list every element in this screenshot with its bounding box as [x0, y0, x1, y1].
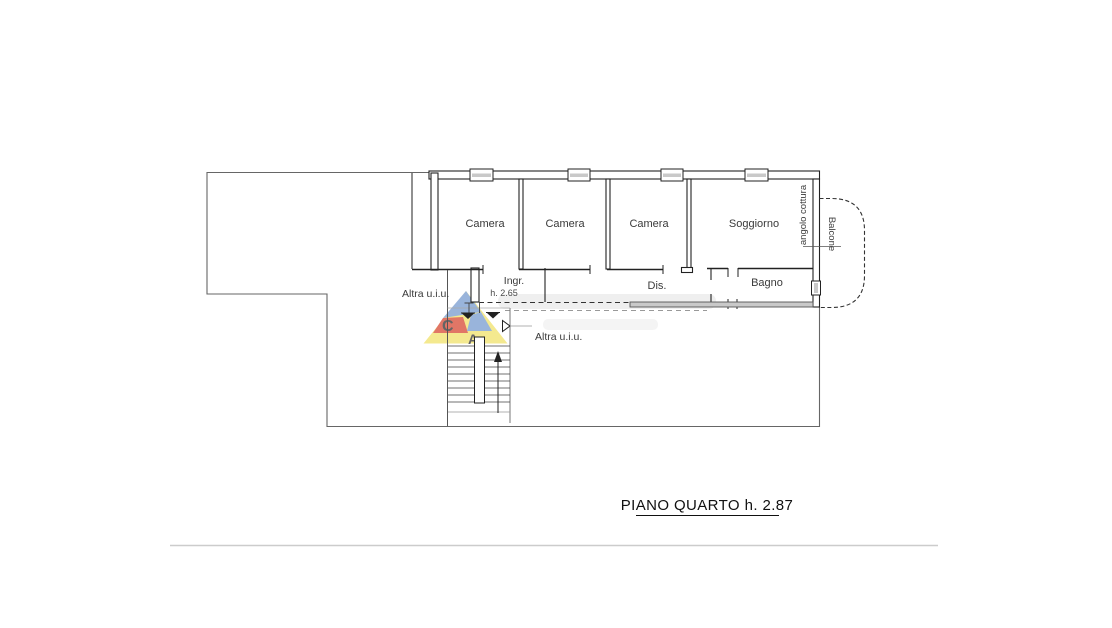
- plan-title-block: PIANO QUARTO h. 2.87: [621, 497, 794, 516]
- balcony-outline: [820, 199, 865, 308]
- partition-camera2-camera3: [606, 179, 610, 269]
- label-angolo-cottura: angolo cottura: [798, 184, 809, 245]
- label-soggiorno: Soggiorno: [729, 218, 779, 230]
- label-bagno: Bagno: [751, 277, 783, 289]
- window-camera2: [568, 169, 590, 181]
- label-camera-3: Camera: [629, 218, 669, 230]
- window-soggiorno: [745, 169, 768, 181]
- window-camera3: [661, 169, 683, 181]
- window-camera1: [470, 169, 493, 181]
- boundary-wall-gray: [630, 302, 813, 307]
- door-symbol-east: [503, 321, 533, 332]
- label-ingresso: Ingr.: [504, 275, 524, 287]
- partition-foot: [682, 268, 693, 273]
- plan-title: PIANO QUARTO h. 2.87: [621, 497, 794, 514]
- wall-ingresso-left: [471, 268, 479, 302]
- stair-stringer: [475, 337, 485, 403]
- label-camera-2: Camera: [545, 218, 585, 230]
- watermark-smudge-band-2: [543, 319, 658, 330]
- label-altra-uiu-right: Altra u.i.u.: [535, 331, 582, 343]
- label-disimpegno: Dis.: [648, 280, 667, 292]
- door-symbol-right: [486, 313, 500, 319]
- watermark-smudge: [498, 294, 716, 330]
- label-camera-1: Camera: [465, 218, 505, 230]
- wall-left-camera1: [431, 173, 438, 270]
- label-ingresso-height: h. 2.65: [490, 288, 518, 298]
- label-balcone: Balcone: [826, 217, 837, 251]
- partition-camera3-soggiorno: [687, 179, 691, 269]
- floorplan-page: C A.: [0, 0, 1112, 628]
- partition-camera1-camera2: [519, 179, 523, 269]
- label-altra-uiu-left: Altra u.i.u.: [402, 288, 449, 300]
- floorplan-drawing: C A.: [0, 0, 1112, 628]
- window-bagno: [812, 281, 821, 295]
